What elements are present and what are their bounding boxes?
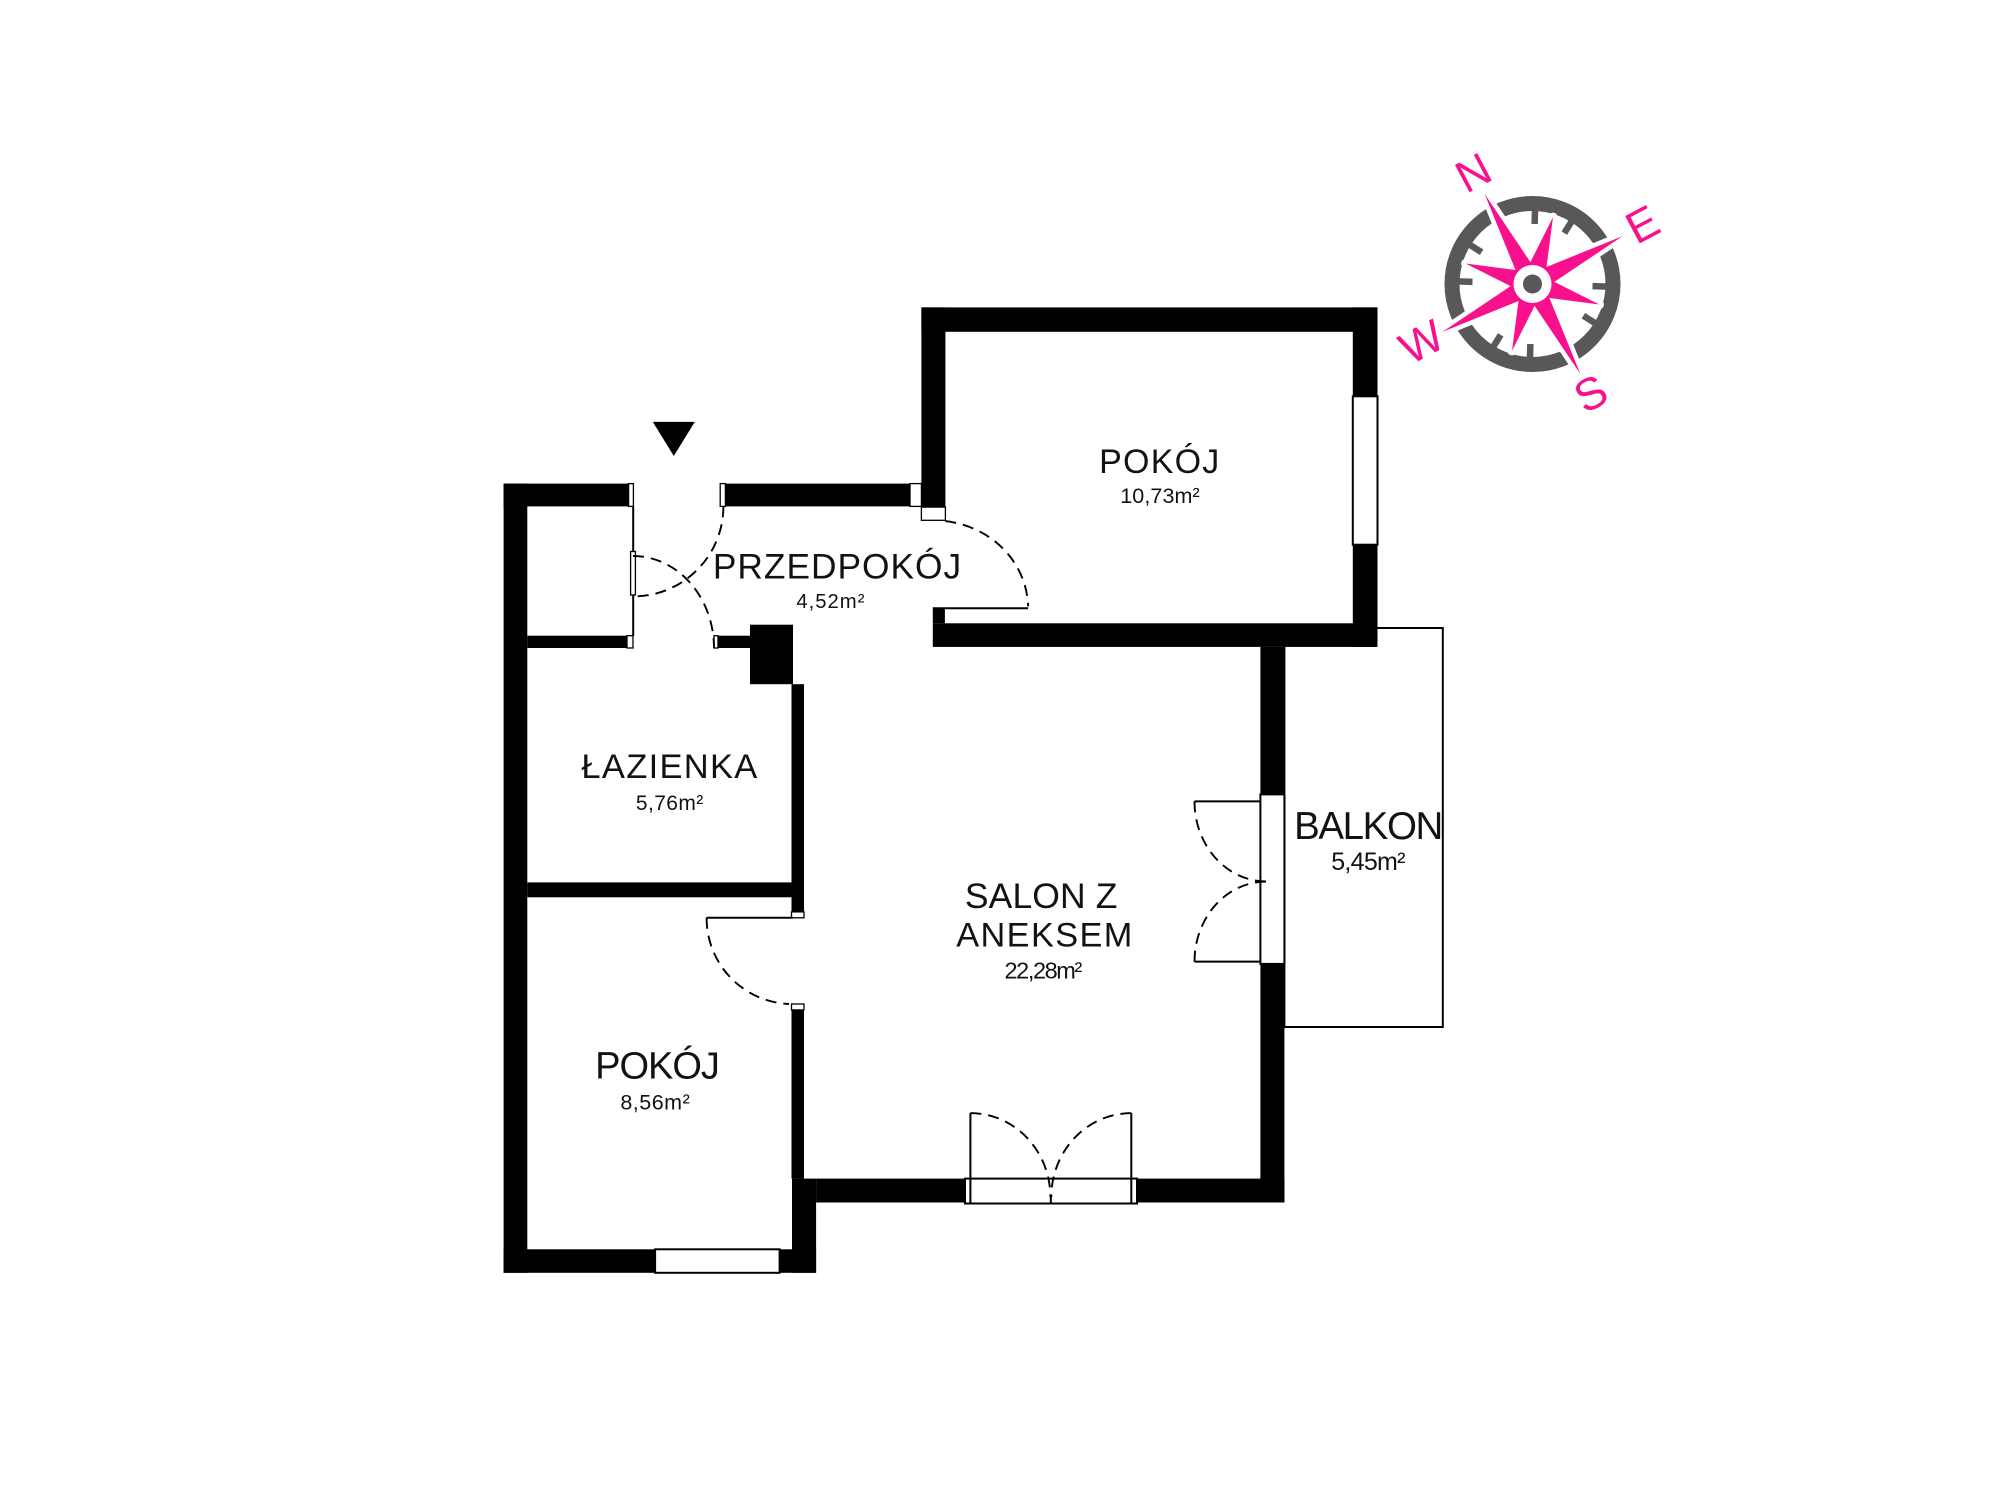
svg-text:ŁAZIENKA: ŁAZIENKA: [581, 748, 758, 786]
svg-text:PRZEDPOKÓJ: PRZEDPOKÓJ: [713, 548, 962, 587]
svg-text:8,56m²: 8,56m²: [620, 1091, 690, 1115]
svg-text:SALON Z: SALON Z: [965, 876, 1118, 916]
svg-text:POKÓJ: POKÓJ: [1099, 443, 1220, 481]
svg-text:22,28m²: 22,28m²: [1004, 958, 1082, 984]
svg-text:10,73m²: 10,73m²: [1120, 484, 1200, 508]
svg-text:4,52m²: 4,52m²: [796, 591, 865, 613]
svg-text:5,76m²: 5,76m²: [636, 792, 704, 815]
svg-text:BALKON: BALKON: [1294, 805, 1442, 848]
svg-text:ANEKSEM: ANEKSEM: [956, 917, 1134, 955]
svg-text:5,45m²: 5,45m²: [1331, 848, 1405, 876]
svg-text:POKÓJ: POKÓJ: [595, 1045, 719, 1088]
